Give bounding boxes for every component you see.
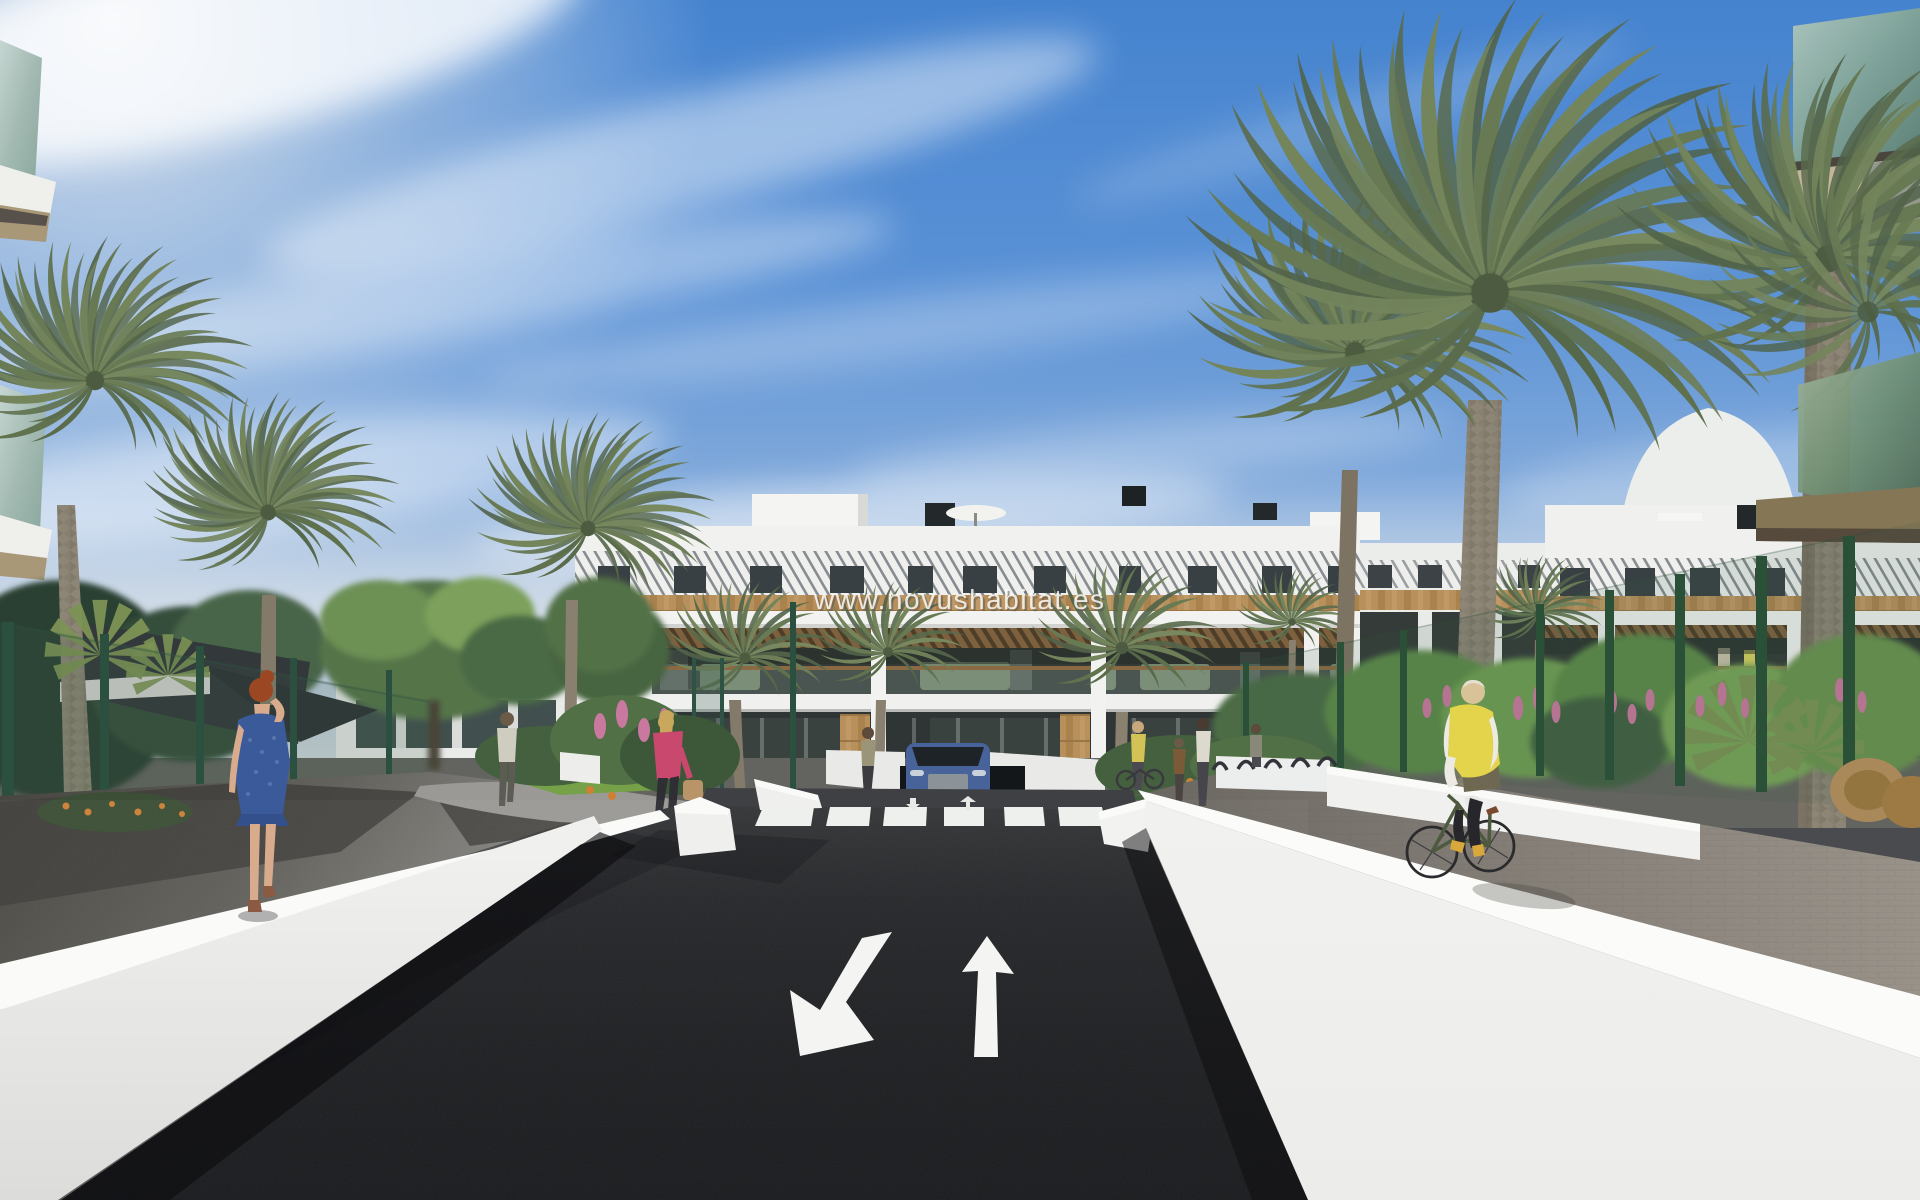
svg-text:www.novushabitat.es: www.novushabitat.es xyxy=(813,584,1106,615)
